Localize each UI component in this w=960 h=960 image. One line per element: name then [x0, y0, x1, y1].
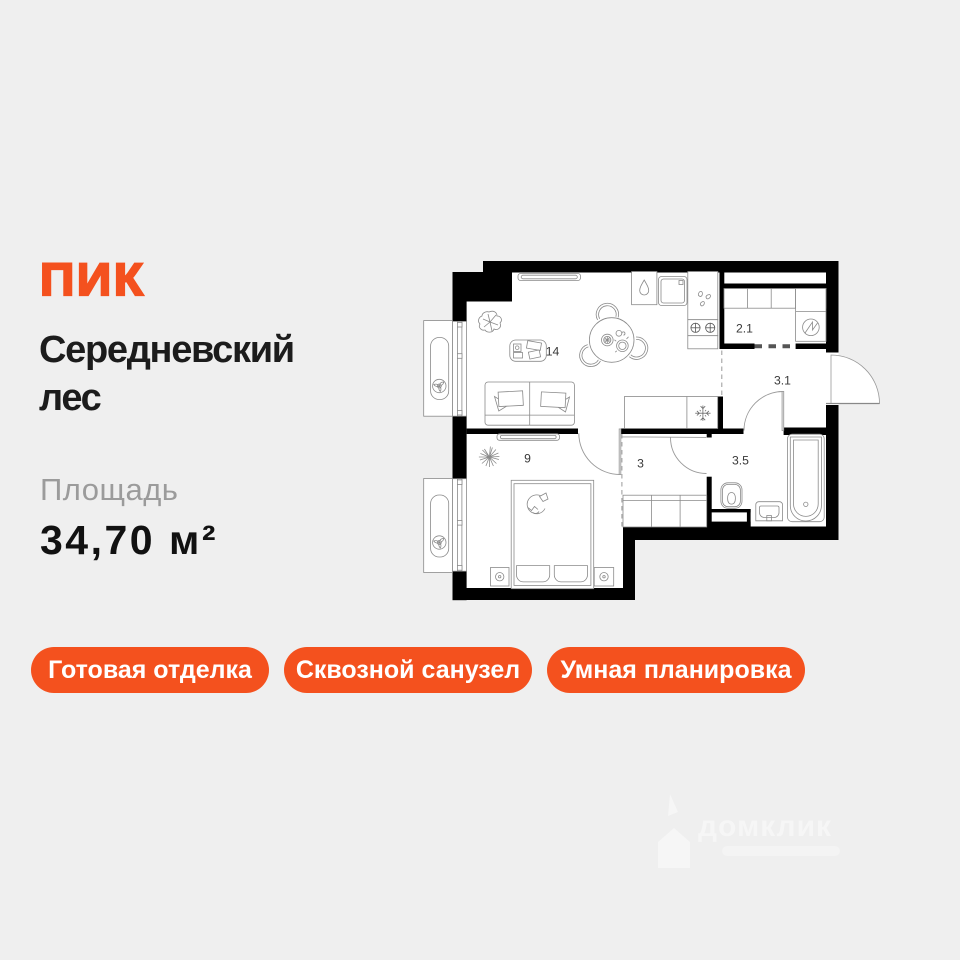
svg-text:2.1: 2.1	[736, 322, 753, 336]
svg-text:домклик: домклик	[698, 810, 832, 843]
svg-text:3.1: 3.1	[774, 374, 791, 388]
svg-text:3.5: 3.5	[732, 454, 749, 468]
svg-text:14: 14	[546, 345, 560, 359]
svg-text:3: 3	[637, 457, 644, 471]
svg-text:9: 9	[524, 452, 531, 466]
